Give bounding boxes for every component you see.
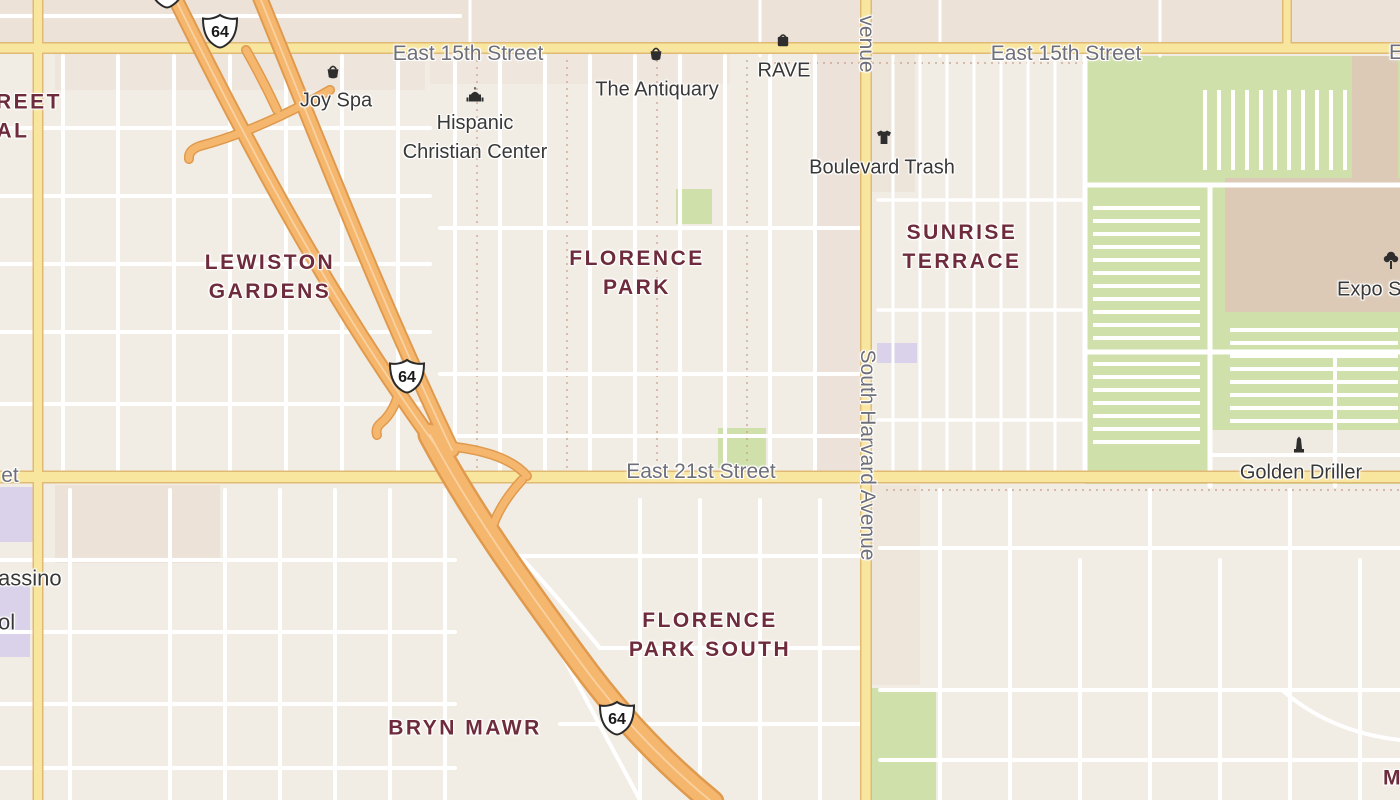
street-label-east-21st: East 21st Street: [626, 460, 775, 484]
poi-line: Christian Center: [403, 138, 548, 167]
street-label-east-15th-west: East 15th Street: [393, 42, 544, 66]
poi-label-joy-spa[interactable]: Joy Spa: [300, 87, 372, 116]
street-label-fragment-left: et: [1, 464, 19, 488]
neighborhood-label-fragment-top-left: REET: [0, 88, 62, 117]
map-canvas[interactable]: 64 64 64 East 15th Street East 15th Stre…: [0, 0, 1400, 800]
poi-label-the-antiquary[interactable]: The Antiquary: [595, 76, 718, 105]
monument-icon[interactable]: [1289, 435, 1309, 457]
street-label-fragment-right: E: [1389, 41, 1400, 65]
neighborhood-label-bryn-mawr: BRYN MAWR: [388, 714, 542, 743]
tree-icon[interactable]: [1380, 249, 1400, 273]
place-of-worship-icon[interactable]: [464, 85, 486, 105]
neighborhood-label-fragment-top-left: AL: [0, 117, 30, 146]
street-label-south-harvard: South Harvard Avenue: [855, 350, 879, 561]
neighborhood-label-sunrise-terrace: SUNRISE TERRACE: [902, 218, 1021, 276]
neighborhood-label-fragment-bottom-right: M: [1383, 764, 1400, 793]
us-64-shield-partial: [147, 0, 187, 10]
poi-label-fragment-pool[interactable]: ol: [0, 608, 15, 637]
neighborhood-line: PARK SOUTH: [629, 635, 791, 664]
clothing-store-icon[interactable]: [873, 128, 895, 148]
street-label-east-15th-east: East 15th Street: [991, 42, 1142, 66]
us-64-shield: 64: [200, 13, 240, 50]
shield-number: 64: [398, 369, 416, 386]
neighborhood-line: FLORENCE: [629, 606, 791, 635]
poi-label-expo-square[interactable]: Expo Sq: [1337, 276, 1400, 305]
poi-label-boulevard-trash[interactable]: Boulevard Trash: [809, 154, 955, 183]
shopping-basket-icon[interactable]: [323, 62, 343, 82]
neighborhood-line: SUNRISE: [902, 218, 1021, 247]
poi-label-golden-driller[interactable]: Golden Driller: [1240, 459, 1362, 488]
shield-number: 64: [211, 24, 229, 41]
poi-label-fragment-cassino[interactable]: assino: [0, 564, 62, 593]
poi-line: Hispanic: [403, 109, 548, 138]
neighborhood-label-lewiston-gardens: LEWISTON GARDENS: [205, 248, 335, 306]
shopping-bag-icon[interactable]: [773, 30, 793, 50]
poi-label-rave[interactable]: RAVE: [758, 57, 811, 86]
us-64-shield: 64: [597, 700, 637, 737]
neighborhood-line: PARK: [569, 273, 705, 302]
neighborhood-label-florence-park: FLORENCE PARK: [569, 244, 705, 302]
neighborhood-line: GARDENS: [205, 277, 335, 306]
street-label-harvard-fragment: venue: [854, 15, 878, 72]
us-64-shield: 64: [387, 358, 427, 395]
poi-label-hispanic-christian-center[interactable]: Hispanic Christian Center: [403, 109, 548, 167]
neighborhood-line: LEWISTON: [205, 248, 335, 277]
neighborhood-label-florence-park-south: FLORENCE PARK SOUTH: [629, 606, 791, 664]
neighborhood-line: TERRACE: [902, 247, 1021, 276]
shield-number: 64: [608, 711, 626, 728]
neighborhood-line: FLORENCE: [569, 244, 705, 273]
map-base-layer: [0, 0, 1400, 800]
shopping-basket-icon[interactable]: [646, 44, 666, 64]
